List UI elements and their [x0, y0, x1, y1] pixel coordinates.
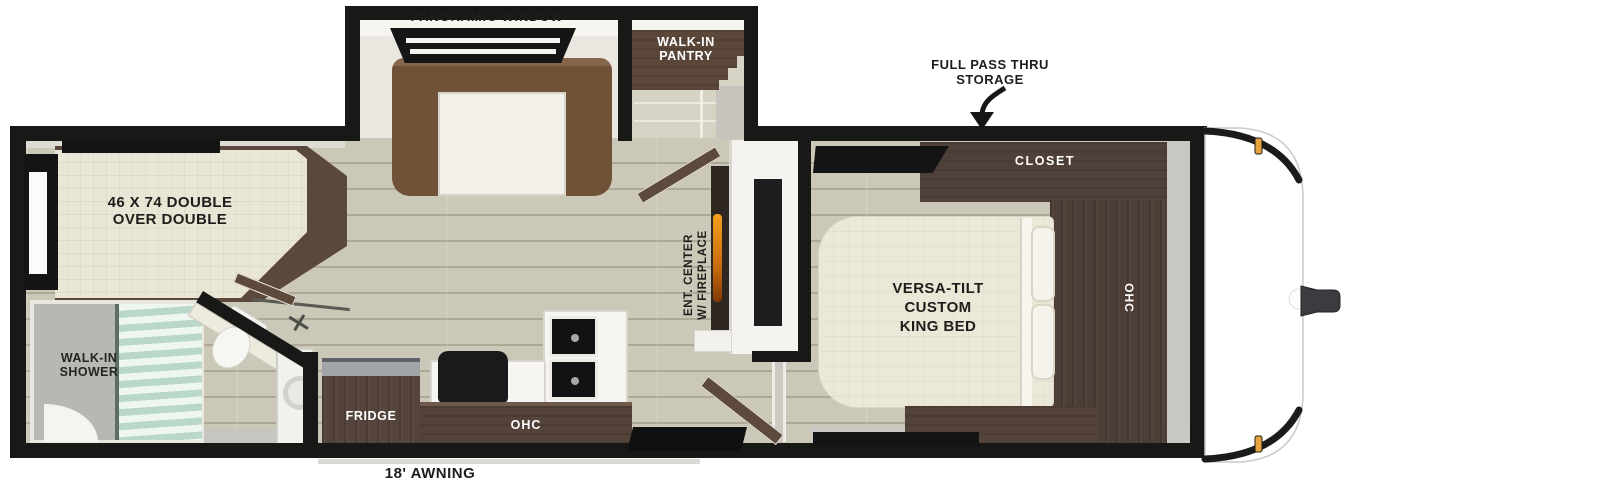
entry-step-mat — [627, 427, 747, 451]
panoramic-window-glass — [390, 28, 576, 63]
bottom-wall — [10, 443, 1207, 458]
fridge-label: FRIDGE — [322, 408, 420, 424]
floorplan-canvas: PANORAMIC WINDOW WALK-IN PANTRY FULL PAS… — [0, 0, 1600, 489]
pillow — [1031, 226, 1055, 302]
bedroom-side-gray-strip — [1167, 141, 1190, 443]
king-bed-label: VERSA-TILT CUSTOM KING BED — [848, 272, 1028, 342]
pantry-floor-divider — [700, 88, 703, 138]
pillow — [1031, 304, 1055, 380]
slide-pantry-divider-wall — [618, 6, 632, 141]
sofa-seat — [438, 92, 566, 196]
bedroom-wall-nib — [752, 351, 811, 362]
walk-in-shower-label: WALK-IN SHOWER — [34, 344, 144, 386]
pantry-right-wall — [744, 6, 758, 141]
bedroom-window-top — [813, 146, 949, 173]
fireplace-flame — [713, 214, 722, 302]
marker-light-icon — [1255, 138, 1262, 154]
fridge-top — [322, 358, 420, 376]
marker-light-icon — [1255, 436, 1262, 452]
sofa-arm-left — [392, 90, 438, 196]
bunk-side-window — [24, 154, 58, 290]
full-pass-thru-storage-label: FULL PASS THRU STORAGE — [900, 56, 1080, 90]
slideout-left-wall — [345, 6, 360, 141]
stove-icon — [438, 351, 508, 403]
closet-label: CLOSET — [965, 152, 1125, 170]
sink-icon — [549, 316, 598, 357]
tv-icon — [754, 179, 782, 326]
bedroom-ohc-label: OHC — [1120, 240, 1136, 356]
ent-center-label: ENT. CENTER W/ FIREPLACE — [679, 195, 713, 355]
storage-arrow-icon — [960, 86, 1020, 134]
bunk-bed-label: 46 X 74 DOUBLE OVER DOUBLE — [70, 190, 270, 232]
awning-label: 18' AWNING — [330, 464, 530, 484]
walk-in-pantry-label: WALK-IN PANTRY — [636, 30, 736, 68]
bunk-top-window — [62, 139, 220, 153]
kitchen-ohc-label: OHC — [420, 417, 632, 433]
pantry-floor-line — [634, 120, 716, 122]
sofa-arm-right — [566, 90, 612, 196]
pantry-floor-line — [634, 102, 716, 104]
panoramic-window-label: PANORAMIC WINDOW — [377, 8, 597, 26]
closet-cabinet — [920, 142, 1167, 202]
sink-icon — [549, 359, 598, 400]
pantry-wall-gray — [716, 86, 744, 138]
bedroom-wall — [798, 132, 811, 353]
front-cap — [1195, 118, 1355, 478]
hitch-icon — [1301, 286, 1340, 316]
bedroom-window-bottom — [813, 432, 979, 446]
